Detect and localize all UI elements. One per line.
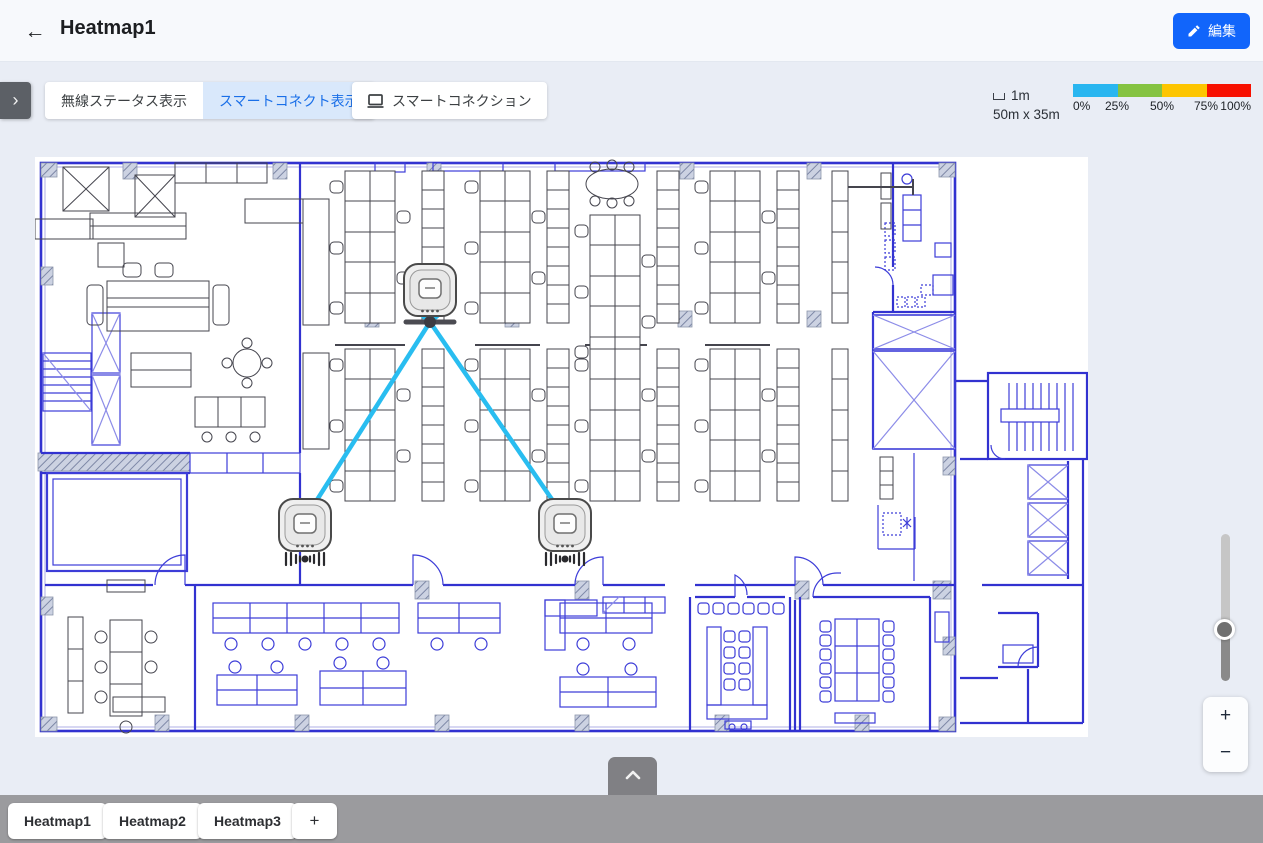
legend-label: 75% xyxy=(1194,99,1218,113)
connection-line xyxy=(430,322,562,514)
edit-button-label: 編集 xyxy=(1208,21,1236,41)
tab-heatmap2[interactable]: Heatmap2 xyxy=(103,803,202,839)
legend-segment-red xyxy=(1207,84,1252,97)
edit-button[interactable]: 編集 xyxy=(1173,13,1250,49)
access-point-layer xyxy=(35,157,1088,737)
tab-heatmap1[interactable]: Heatmap1 xyxy=(8,803,107,839)
drawer-toggle-button[interactable]: › xyxy=(0,82,31,119)
smart-connection-label: スマートコネクション xyxy=(392,91,532,111)
ap-signal-icon xyxy=(546,553,584,565)
smart-connect-display-button[interactable]: スマートコネクト表示 xyxy=(203,82,375,119)
legend-label: 50% xyxy=(1150,99,1174,113)
zoom-in-button[interactable]: + xyxy=(1203,697,1248,735)
zoom-out-button[interactable]: − xyxy=(1203,735,1248,773)
zoom-slider-thumb[interactable] xyxy=(1214,619,1235,640)
legend-label: 25% xyxy=(1105,99,1129,113)
access-point-ap-bottom-left[interactable] xyxy=(279,499,331,551)
connection-line xyxy=(308,322,430,514)
map-info: 1m 50m x 35m xyxy=(993,86,1060,124)
access-point-ap-top[interactable] xyxy=(404,264,456,316)
legend-labels: 0% 25% 50% 75% 100% xyxy=(1073,99,1251,114)
smart-connection-button[interactable]: スマートコネクション xyxy=(352,82,547,119)
zoom-panel: + − xyxy=(1203,697,1248,772)
legend-segment-green xyxy=(1118,84,1163,97)
page-title: Heatmap1 xyxy=(60,17,156,40)
ap-signal-icon xyxy=(286,553,324,565)
back-button[interactable]: ← xyxy=(20,17,50,47)
monitor-icon xyxy=(367,94,384,108)
bottom-tab-bar: Heatmap1 Heatmap2 Heatmap3 + xyxy=(0,795,1263,843)
add-heatmap-button[interactable]: + xyxy=(292,803,337,839)
heat-legend: 0% 25% 50% 75% 100% xyxy=(1073,84,1251,114)
legend-label: 0% xyxy=(1073,99,1090,113)
pencil-icon xyxy=(1187,24,1201,38)
header: ← Heatmap1 編集 xyxy=(0,0,1263,62)
connection-junction xyxy=(406,316,454,328)
wireless-status-button[interactable]: 無線ステータス表示 xyxy=(45,82,203,119)
collapse-panel-button[interactable] xyxy=(608,757,657,795)
chevron-up-icon xyxy=(620,767,646,783)
scale-value: 1m xyxy=(1011,86,1030,105)
legend-label: 100% xyxy=(1220,99,1251,113)
zoom-slider-track[interactable] xyxy=(1221,534,1230,681)
tab-heatmap3[interactable]: Heatmap3 xyxy=(198,803,297,839)
scale-icon xyxy=(993,93,1005,100)
heatmap-app: ← Heatmap1 編集 › 無線ステータス表示 スマートコネクト表示 スマー… xyxy=(0,0,1263,843)
legend-segment-blue xyxy=(1073,84,1118,97)
access-point-ap-bottom-right[interactable] xyxy=(539,499,591,551)
map-dimensions: 50m x 35m xyxy=(993,105,1060,124)
floor-plan-canvas[interactable] xyxy=(35,157,1088,737)
display-mode-group: 無線ステータス表示 スマートコネクト表示 xyxy=(45,82,375,119)
chevron-right-icon: › xyxy=(13,90,19,110)
legend-segment-yellow xyxy=(1162,84,1207,97)
heat-legend-bar xyxy=(1073,84,1251,97)
